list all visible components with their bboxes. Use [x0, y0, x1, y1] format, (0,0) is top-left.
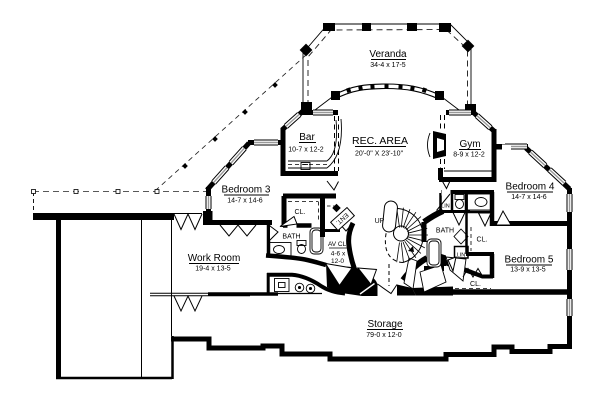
svg-text:79-0 x 12-0: 79-0 x 12-0 — [366, 332, 402, 339]
svg-text:Work Room: Work Room — [188, 253, 241, 264]
svg-text:Bedroom 5: Bedroom 5 — [505, 255, 554, 266]
svg-text:14-7 x 14-6: 14-7 x 14-6 — [511, 194, 547, 201]
svg-text:14-7 x 14-6: 14-7 x 14-6 — [227, 198, 263, 205]
svg-text:10-7 x 12-2: 10-7 x 12-2 — [288, 147, 324, 154]
svg-text:Bar: Bar — [299, 132, 315, 143]
svg-text:8-9 x 12-2: 8-9 x 12-2 — [453, 152, 485, 159]
svg-text:CL.: CL. — [470, 281, 481, 288]
svg-text:LIN: LIN — [457, 253, 466, 259]
svg-text:Gym: Gym — [459, 139, 480, 150]
svg-text:34-4 x 17-5: 34-4 x 17-5 — [370, 62, 406, 69]
svg-text:UP: UP — [375, 218, 385, 225]
svg-text:20'-0" X 23'-10": 20'-0" X 23'-10" — [355, 151, 404, 158]
svg-text:AV CL.: AV CL. — [328, 241, 348, 248]
svg-text:BATH: BATH — [282, 234, 300, 241]
svg-text:13-9 x 13-5: 13-9 x 13-5 — [510, 267, 546, 274]
svg-text:Veranda: Veranda — [369, 49, 407, 60]
svg-text:19-4 x 13-5: 19-4 x 13-5 — [195, 266, 231, 273]
svg-text:Storage: Storage — [367, 319, 402, 330]
svg-text:4-6 x: 4-6 x — [331, 251, 346, 258]
svg-text:CL.: CL. — [295, 209, 306, 216]
svg-text:BATH: BATH — [436, 228, 454, 235]
svg-text:REC. AREA: REC. AREA — [352, 135, 408, 147]
svg-text:LIN: LIN — [441, 204, 450, 210]
svg-text:12-0: 12-0 — [331, 258, 344, 265]
svg-text:Bedroom 3: Bedroom 3 — [222, 185, 271, 196]
svg-text:CL.: CL. — [477, 237, 488, 244]
svg-text:Bedroom 4: Bedroom 4 — [506, 182, 555, 193]
